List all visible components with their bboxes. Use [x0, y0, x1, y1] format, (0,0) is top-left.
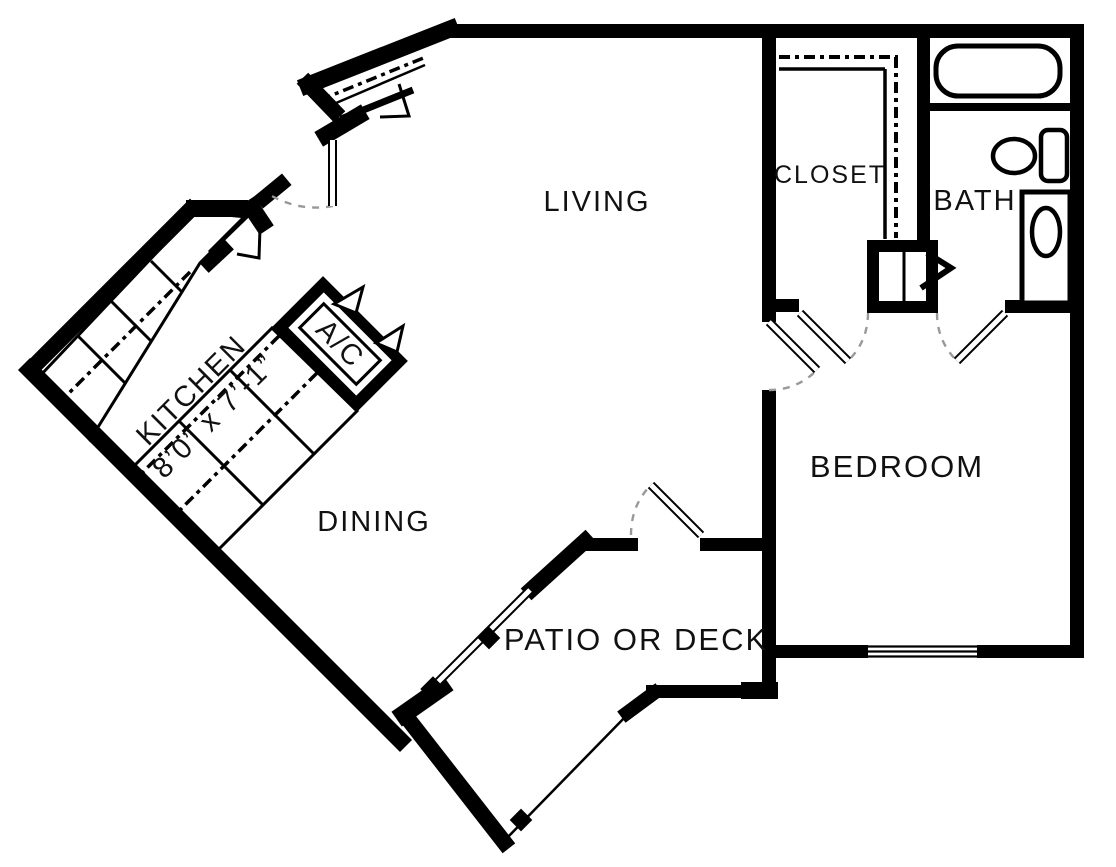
patio-door-leaf-core: [651, 485, 701, 535]
closet-door-arc: [848, 313, 868, 361]
bath-door-leaf-core: [957, 313, 1005, 361]
wall-patio-southwest: [412, 724, 504, 842]
wall-dining-corner: [532, 541, 585, 589]
bath-door-arc: [937, 313, 957, 361]
patio-label: PATIO OR DECK: [504, 622, 768, 657]
wall-entry-band: [308, 29, 450, 85]
wall-tub: [928, 103, 1078, 111]
bathtub-icon: [936, 46, 1060, 96]
closet-door-leaf-core: [800, 313, 848, 361]
wall-right: [1070, 24, 1084, 658]
wall-patio-jamb: [741, 682, 778, 699]
floor-plan: A/C: [0, 0, 1116, 867]
hall-closet-shelving: [779, 57, 898, 239]
wall-dining-south-right: [700, 538, 776, 551]
patio-door-arc: [631, 485, 651, 535]
pantry-door-icon: [237, 228, 260, 258]
wall-top: [447, 24, 1084, 38]
toilet-bowl-icon: [993, 139, 1035, 173]
bathroom: [867, 46, 1078, 313]
toilet-tank-icon: [1041, 130, 1067, 181]
wall-closet-jamb: [776, 299, 799, 312]
entry-door-arc: [270, 195, 333, 208]
wall-closet-bath-divider: [917, 38, 930, 240]
bath-label: BATH: [933, 185, 1016, 217]
rail-post: [510, 809, 533, 832]
wall-kitchen-cap-drop: [252, 208, 262, 223]
living-label: LIVING: [543, 186, 650, 218]
bedroom-door-arc: [769, 370, 817, 390]
bedroom-label: BEDROOM: [810, 449, 984, 484]
rail-post: [478, 627, 501, 650]
bedroom-door-leaf-core: [769, 322, 817, 370]
dining-label: DINING: [317, 506, 431, 538]
bedroom-window: [868, 645, 977, 658]
closet-label: CLOSET: [774, 161, 886, 189]
wall-patio-south: [646, 685, 746, 698]
counter-divider: [151, 261, 182, 292]
sink-icon: [1032, 208, 1060, 256]
wall-kitchen-northwest: [30, 210, 190, 370]
floor-plan-svg: A/C: [0, 0, 1116, 867]
counter-divider: [111, 301, 151, 341]
